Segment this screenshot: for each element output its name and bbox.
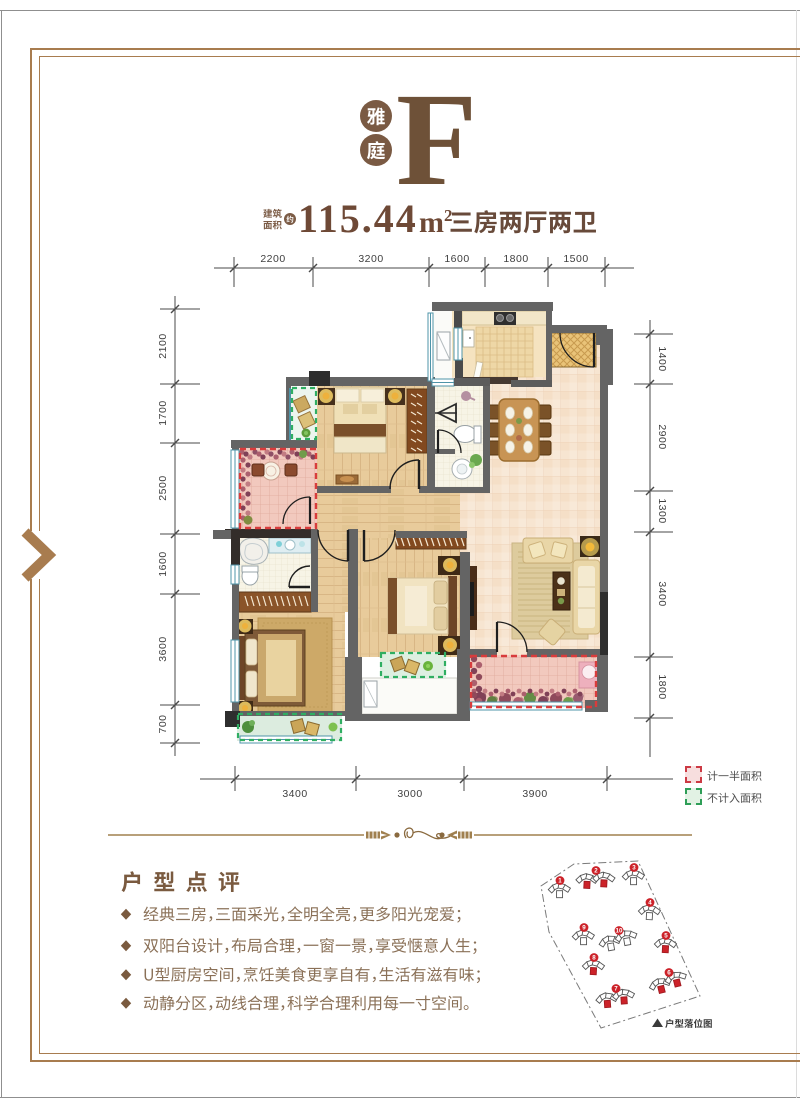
- svg-text:2200: 2200: [260, 253, 285, 265]
- svg-text:4: 4: [648, 900, 652, 907]
- svg-text:9: 9: [582, 925, 586, 932]
- svg-text:1800: 1800: [503, 253, 528, 265]
- svg-text:3200: 3200: [358, 253, 383, 265]
- svg-text:3600: 3600: [157, 636, 169, 661]
- svg-text:3: 3: [632, 865, 636, 872]
- svg-text:2: 2: [594, 868, 598, 875]
- svg-text:1300: 1300: [656, 498, 668, 523]
- svg-text:1600: 1600: [444, 253, 469, 265]
- svg-text:1800: 1800: [656, 674, 668, 699]
- svg-text:3900: 3900: [522, 788, 547, 800]
- svg-text:8: 8: [592, 955, 596, 962]
- svg-text:2100: 2100: [157, 333, 169, 358]
- svg-text:10: 10: [616, 928, 623, 935]
- svg-text:7: 7: [614, 986, 618, 993]
- svg-text:5: 5: [664, 933, 668, 940]
- svg-text:1700: 1700: [157, 400, 169, 425]
- svg-text:3400: 3400: [656, 581, 668, 606]
- svg-text:6: 6: [667, 970, 671, 977]
- svg-text:3400: 3400: [282, 788, 307, 800]
- svg-text:1500: 1500: [563, 253, 588, 265]
- svg-text:1400: 1400: [656, 346, 668, 371]
- svg-text:2900: 2900: [656, 424, 668, 449]
- svg-text:1: 1: [558, 878, 562, 885]
- svg-text:700: 700: [157, 714, 169, 733]
- svg-text:2500: 2500: [157, 475, 169, 500]
- svg-text:1600: 1600: [157, 551, 169, 576]
- svg-text:3000: 3000: [397, 788, 422, 800]
